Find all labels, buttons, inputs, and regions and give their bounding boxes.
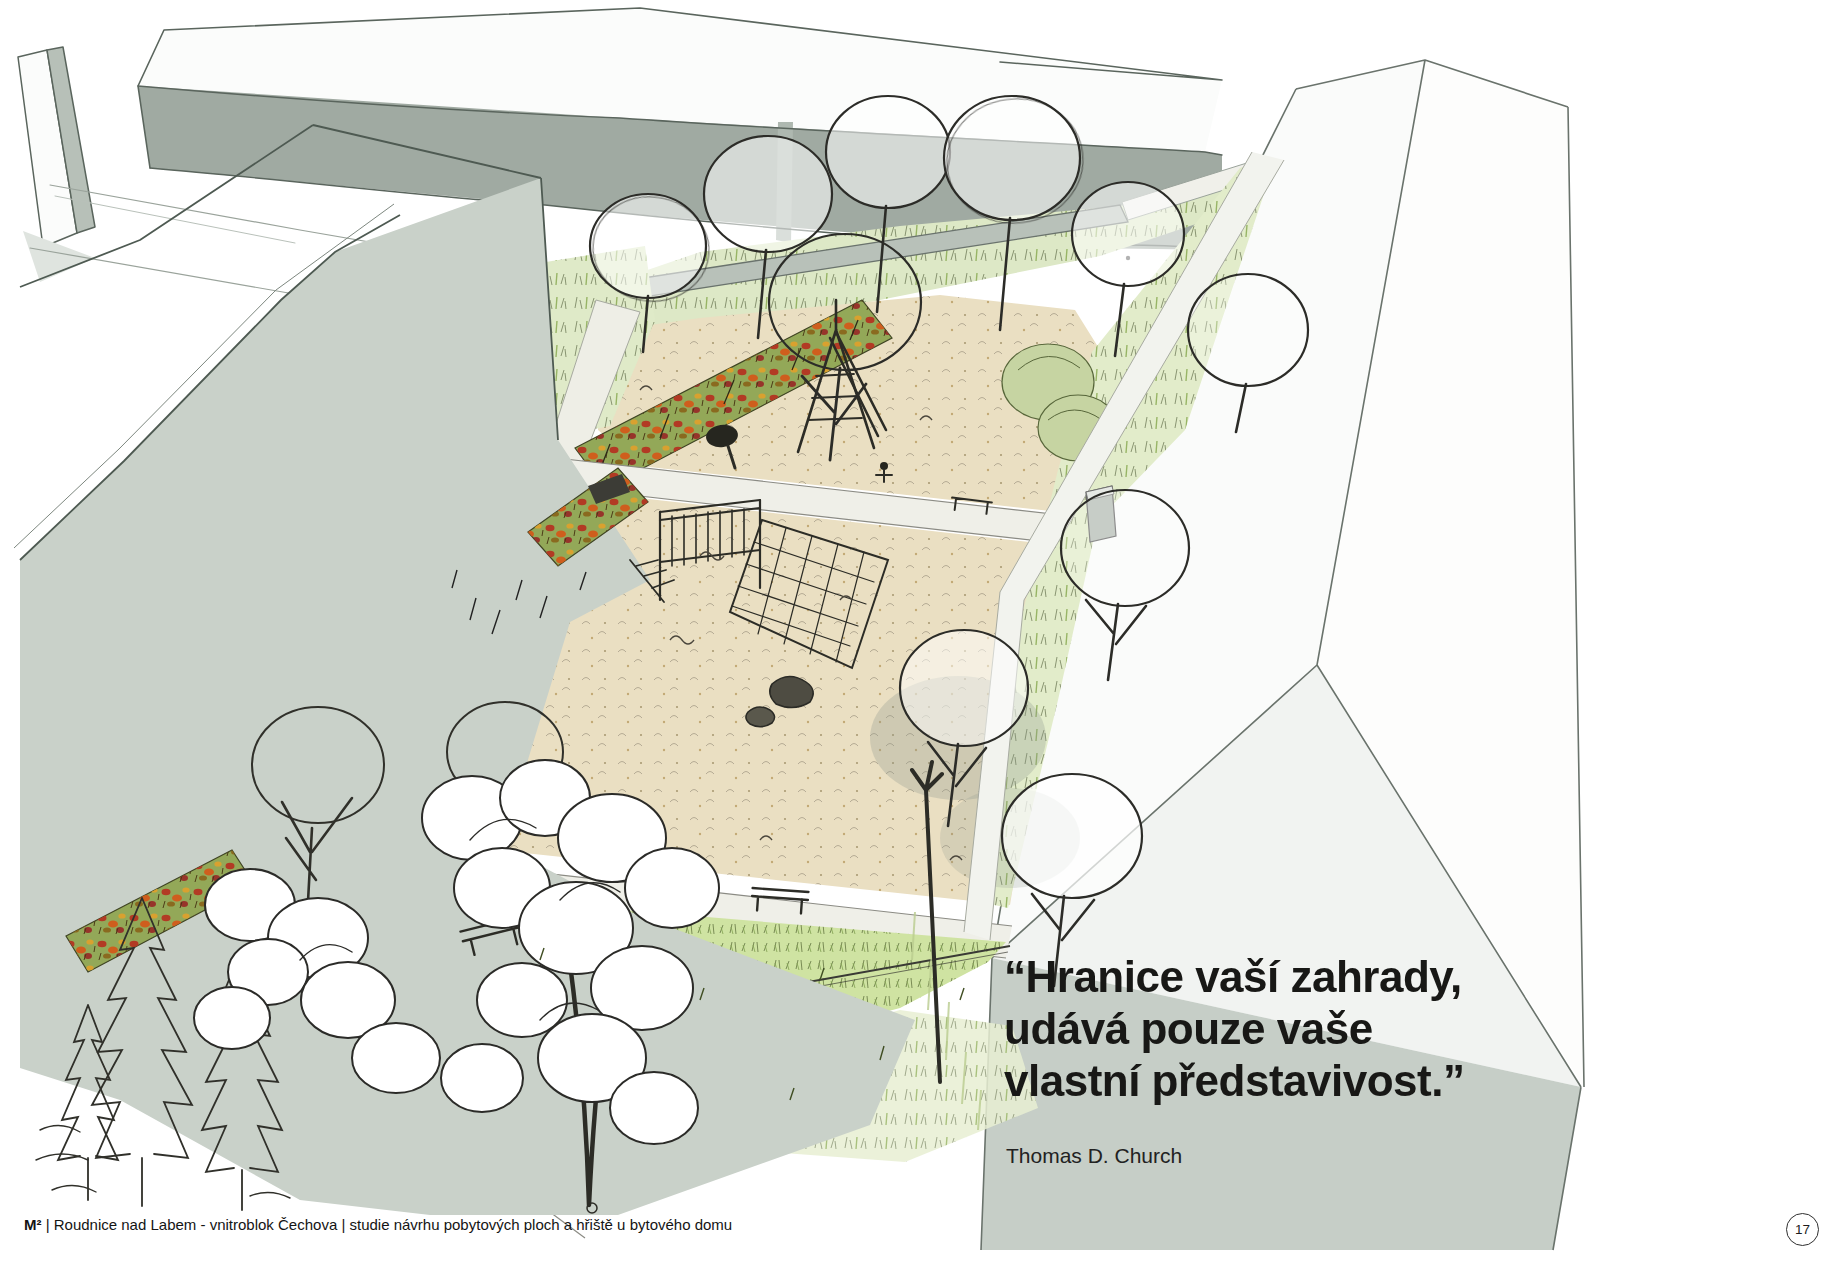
quote-block: “Hranice vaší zahrady, udává pouze vaše … [1004, 951, 1604, 1107]
quote-line-2: udává pouze vaše [1004, 1003, 1604, 1055]
page-number-badge: 17 [1786, 1213, 1819, 1246]
quote-line-1: “Hranice vaší zahrady, [1004, 951, 1604, 1003]
quote-line-3: vlastní představivost.” [1004, 1055, 1604, 1107]
page-number: 17 [1795, 1222, 1810, 1237]
footer-text: | Roudnice nad Labem - vnitroblok Čechov… [42, 1216, 733, 1233]
page: “Hranice vaší zahrady, udává pouze vaše … [0, 0, 1832, 1261]
quote-attribution: Thomas D. Church [1006, 1144, 1182, 1168]
footer-brand: M² [24, 1216, 42, 1233]
footer-caption: M² | Roudnice nad Labem - vnitroblok Čec… [24, 1216, 732, 1233]
